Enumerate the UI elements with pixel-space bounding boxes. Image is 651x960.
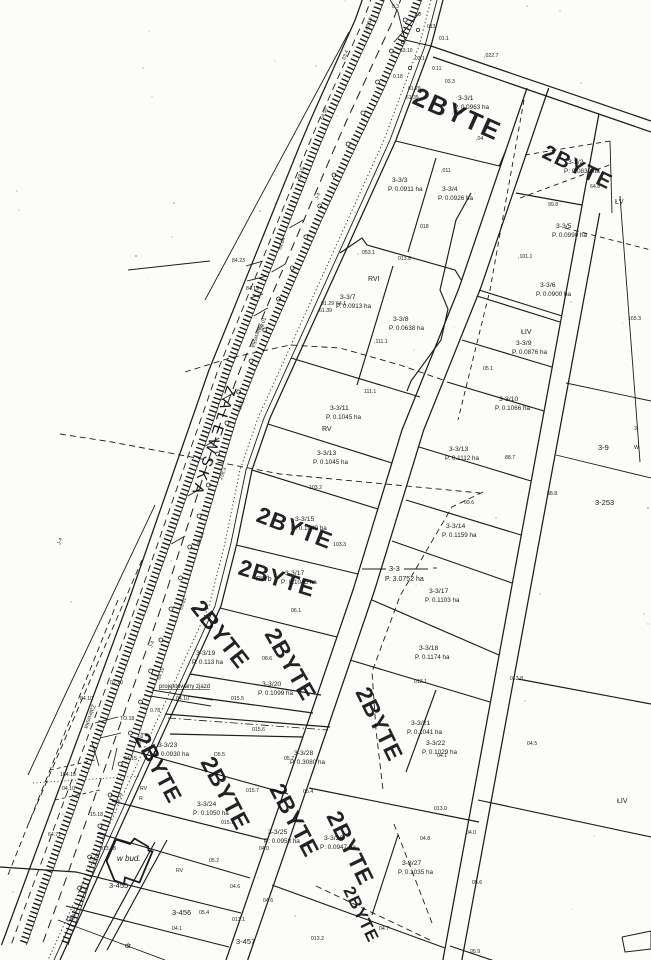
svg-text:03.3: 03.3: [445, 79, 455, 85]
svg-text:01.1: 01.1: [439, 36, 449, 42]
svg-text:04.6: 04.6: [263, 898, 273, 904]
svg-text:0.11: 0.11: [432, 66, 442, 72]
svg-text:3-253: 3-253: [595, 498, 614, 507]
svg-text:P. 0.3080 ha: P. 0.3080 ha: [290, 759, 325, 766]
svg-text:04.10: 04.10: [62, 786, 75, 792]
svg-text:P. 0.1103 ha: P. 0.1103 ha: [425, 597, 460, 604]
svg-text:3-455: 3-455: [109, 881, 128, 890]
svg-text:3-3/20: 3-3/20: [262, 681, 281, 688]
svg-text:0.18: 0.18: [393, 74, 403, 80]
svg-text:3-: 3-: [634, 426, 639, 432]
svg-text:RV: RV: [176, 868, 184, 874]
svg-text:P. 0.113 ha: P. 0.113 ha: [192, 659, 223, 666]
svg-text:64.15: 64.15: [124, 756, 137, 762]
svg-text:053.1: 053.1: [362, 250, 375, 256]
svg-text:w bud.: w bud.: [117, 854, 141, 863]
svg-text:3-3/13: 3-3/13: [317, 450, 336, 457]
svg-text:88.7: 88.7: [505, 455, 515, 461]
svg-text:P. 0.1066 ha: P. 0.1066 ha: [495, 405, 530, 412]
svg-text:02.10: 02.10: [110, 680, 123, 686]
svg-text:ŁIV: ŁIV: [617, 798, 628, 805]
svg-text:05.4: 05.4: [303, 789, 313, 795]
svg-text:61.39: 61.39: [406, 95, 419, 101]
svg-text:3-457: 3-457: [236, 937, 255, 946]
svg-text:,111.1: ,111.1: [374, 339, 388, 345]
svg-text:01.29: 01.29: [408, 86, 421, 92]
svg-text:05.1: 05.1: [483, 366, 493, 372]
svg-text:64.71: 64.71: [48, 832, 61, 838]
svg-text:ŁV: ŁV: [615, 199, 624, 206]
svg-text:P. 0.1029 ha: P. 0.1029 ha: [422, 749, 457, 756]
svg-text:P. 0.1159 ha: P. 0.1159 ha: [442, 532, 477, 539]
svg-text:0.78: 0.78: [150, 708, 160, 714]
svg-text:04.0: 04.0: [466, 830, 476, 836]
svg-text:RV: RV: [322, 426, 332, 433]
svg-text:3-3/4: 3-3/4: [442, 186, 458, 193]
svg-text:,011: ,011: [441, 168, 451, 174]
svg-text:P. 0.0990 ha: P. 0.0990 ha: [552, 232, 587, 239]
svg-text:103.2: 103.2: [309, 485, 322, 491]
svg-text:TO.18: TO.18: [120, 716, 134, 722]
svg-text:04.8: 04.8: [420, 836, 430, 842]
svg-text:P. 0.0638 ha: P. 0.0638 ha: [389, 325, 424, 332]
svg-text:04.1: 04.1: [172, 926, 182, 932]
svg-text:3-3/27: 3-3/27: [402, 860, 421, 867]
svg-text:165.3: 165.3: [628, 316, 641, 322]
svg-text:3-3/13: 3-3/13: [449, 446, 468, 453]
svg-text:88.8: 88.8: [547, 491, 557, 497]
svg-text:04.0: 04.0: [259, 846, 269, 852]
svg-text:3-9: 3-9: [598, 443, 609, 452]
svg-text:P. 3.0752 ha: P. 3.0752 ha: [385, 576, 424, 583]
svg-text:dr: dr: [125, 943, 132, 950]
svg-text:R: R: [139, 796, 143, 802]
svg-text:99.6: 99.6: [464, 500, 474, 506]
svg-text:184.10: 184.10: [60, 772, 76, 778]
svg-text:05.6: 05.6: [472, 880, 482, 886]
svg-text:3-3/5: 3-3/5: [556, 223, 572, 230]
svg-text:111.1: 111.1: [364, 389, 376, 395]
svg-text:P. 0.1045 ha: P. 0.1045 ha: [326, 414, 361, 421]
svg-text:05.4: 05.4: [199, 910, 209, 916]
svg-text:3-3/7: 3-3/7: [340, 294, 356, 301]
svg-text:3-3/14: 3-3/14: [446, 523, 465, 530]
svg-text:P. 0.0926 ha: P. 0.0926 ha: [438, 195, 473, 202]
svg-text:W: W: [634, 445, 639, 451]
svg-text:04.10: 04.10: [176, 696, 189, 702]
svg-text:3-3/9: 3-3/9: [516, 340, 532, 347]
svg-text:0.3: 0.3: [392, 4, 399, 10]
svg-text:P. 0.0876 ha: P. 0.0876 ha: [512, 349, 547, 356]
svg-text:3-3/3: 3-3/3: [392, 177, 408, 184]
svg-text:63.10: 63.10: [400, 48, 413, 54]
svg-text:P. 0.1045 ha: P. 0.1045 ha: [313, 459, 348, 466]
svg-text:3-3/22: 3-3/22: [426, 740, 445, 747]
svg-text:projektowany zjazd: projektowany zjazd: [159, 684, 210, 690]
svg-text:103.3: 103.3: [333, 542, 346, 548]
svg-text:3-3/11: 3-3/11: [330, 405, 349, 412]
svg-text:,101.1: ,101.1: [518, 254, 533, 260]
svg-text:015.5: 015.5: [231, 696, 244, 702]
svg-text:99.8: 99.8: [548, 202, 558, 208]
svg-text:P. 0.0911 ha: P. 0.0911 ha: [388, 186, 423, 193]
svg-text:01.29: 01.29: [321, 301, 334, 307]
svg-text:013.1: 013.1: [232, 917, 245, 923]
svg-text:ŁIV: ŁIV: [521, 329, 532, 336]
svg-text:61.39: 61.39: [319, 308, 332, 314]
svg-text:P. 0.1041 ha: P. 0.1041 ha: [407, 729, 442, 736]
svg-text:3-3/24: 3-3/24: [197, 801, 216, 808]
svg-text:018: 018: [420, 224, 429, 230]
svg-text:3-3/19: 3-3/19: [196, 650, 215, 657]
svg-text:04.5: 04.5: [527, 741, 537, 747]
svg-text:04.6: 04.6: [230, 884, 240, 890]
svg-text:84.23: 84.23: [232, 258, 245, 264]
svg-text:3-3: 3-3: [389, 564, 400, 573]
svg-text:84.10: 84.10: [80, 696, 93, 702]
svg-text:013.1: 013.1: [414, 679, 427, 685]
svg-text:15.18: 15.18: [90, 812, 103, 818]
svg-text:RVI: RVI: [368, 276, 380, 283]
svg-text:P. 0.1174 ha: P. 0.1174 ha: [415, 654, 450, 661]
svg-text:P. 0.0900 ha: P. 0.0900 ha: [536, 291, 571, 298]
svg-text:3-456: 3-456: [172, 908, 191, 917]
svg-text:013.2: 013.2: [311, 936, 324, 942]
svg-text:3-3/28: 3-3/28: [294, 750, 313, 757]
svg-text:3-3/6: 3-3/6: [540, 282, 556, 289]
svg-text:06.1: 06.1: [291, 608, 301, 614]
svg-text:3-3/18: 3-3/18: [419, 645, 438, 652]
svg-text:015.7: 015.7: [246, 788, 259, 794]
svg-text:015.6: 015.6: [252, 727, 265, 733]
svg-text:3-3/25: 3-3/25: [268, 829, 287, 836]
svg-text:,022.7: ,022.7: [484, 53, 499, 59]
svg-text:P. 0.0913 ha: P. 0.0913 ha: [336, 303, 371, 310]
svg-text:013.8: 013.8: [510, 676, 523, 682]
svg-text:03.1: 03.1: [415, 56, 425, 62]
svg-text:1.0: 1.0: [414, 12, 421, 18]
svg-text:3-3/17: 3-3/17: [429, 588, 448, 595]
svg-text:P. 0.1112 ha: P. 0.1112 ha: [445, 455, 480, 462]
svg-text:05.2: 05.2: [209, 858, 219, 864]
svg-text:08.6: 08.6: [262, 656, 272, 662]
svg-text:84.19: 84.19: [246, 286, 259, 292]
svg-text:013: 013: [427, 24, 436, 30]
svg-text:013.18: 013.18: [100, 846, 116, 852]
svg-text:013.8: 013.8: [398, 256, 411, 262]
svg-text:RV: RV: [140, 786, 148, 792]
svg-text:P. 0.1099 ha: P. 0.1099 ha: [258, 690, 293, 697]
svg-text:95.9: 95.9: [470, 949, 480, 955]
svg-text:P. 0.1035 ha: P. 0.1035 ha: [398, 869, 433, 876]
svg-text:3-3/21: 3-3/21: [411, 720, 430, 727]
svg-text:3-3/10: 3-3/10: [499, 396, 518, 403]
svg-text:3-3/8: 3-3/8: [393, 316, 409, 323]
